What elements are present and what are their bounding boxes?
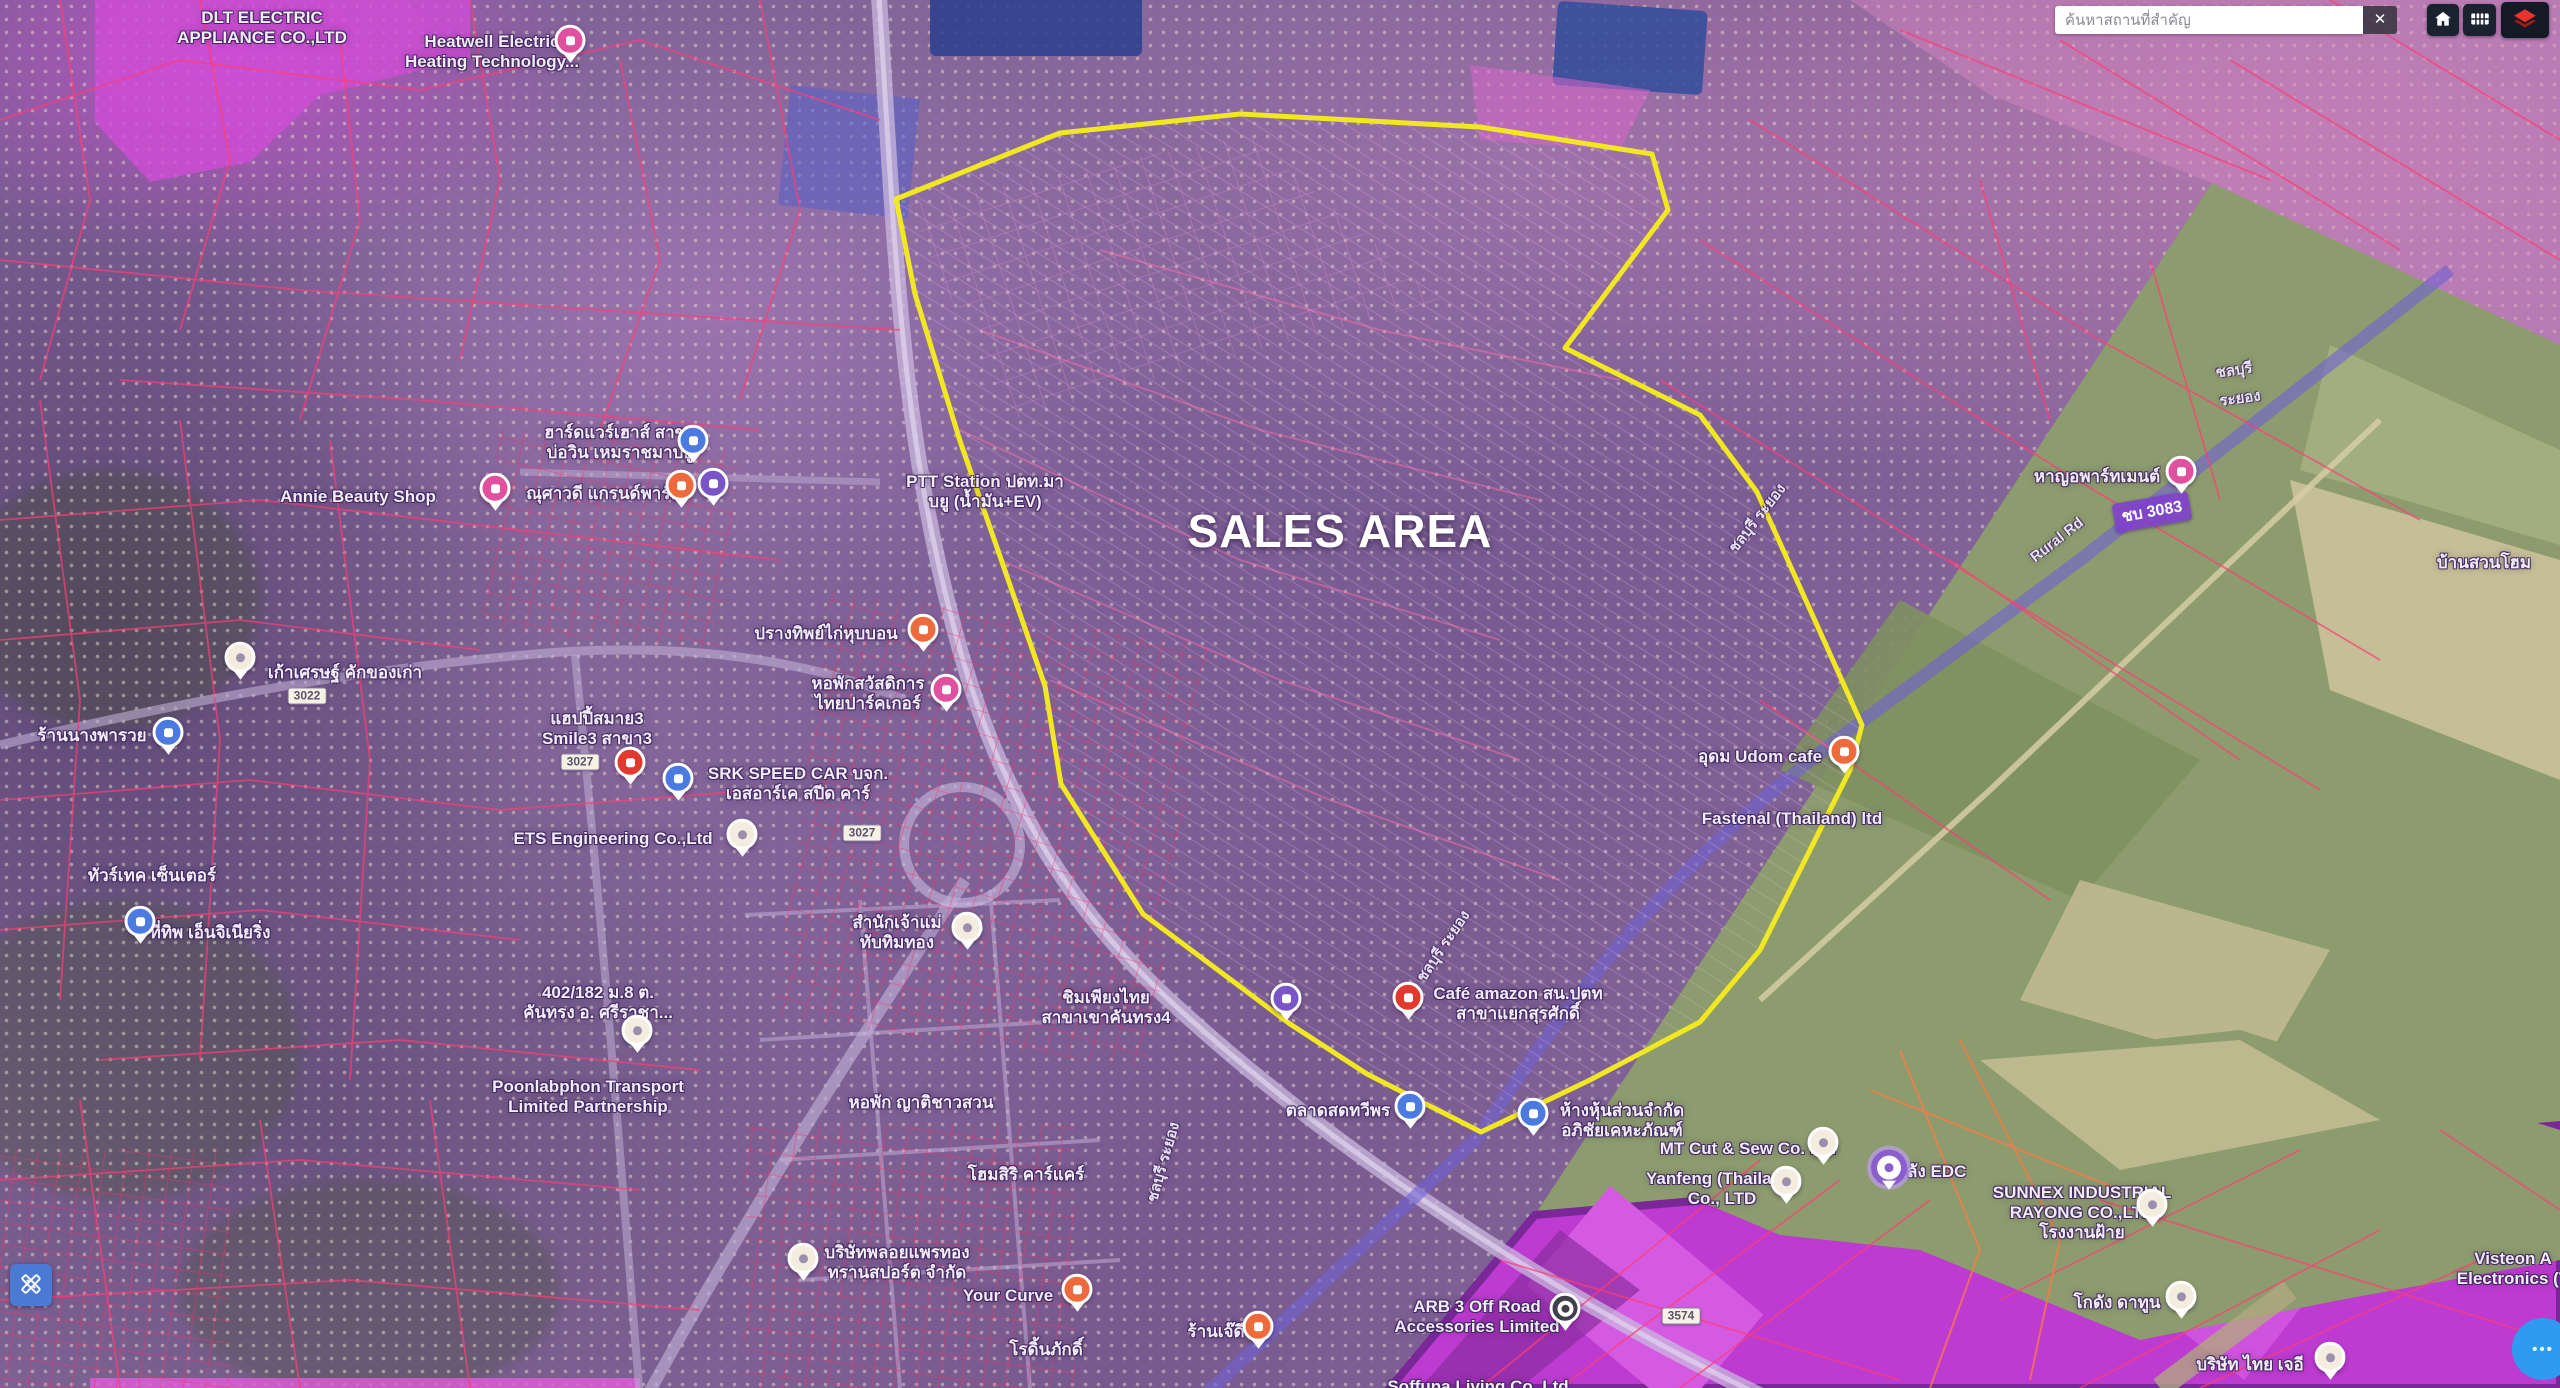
grid-button[interactable] [2463,4,2496,36]
road-west [0,650,905,745]
pencil-ruler-icon [18,1271,44,1300]
clear-search-button[interactable]: ✕ [2363,6,2397,34]
parcel-grid [745,1125,1075,1388]
layers-button[interactable] [2501,2,2549,38]
search-bar: ✕ [2055,6,2397,34]
grid-table-icon [2469,8,2491,33]
map-canvas[interactable]: SALES AREA DLT ELECTRICAPPLIANCE CO.,LTD… [0,0,2560,1388]
draw-tool-button[interactable] [10,1264,52,1306]
layers-icon [2512,6,2538,35]
search-input[interactable] [2055,6,2363,34]
home-button[interactable] [2427,4,2459,36]
parcel-grid [482,430,739,650]
zone-magenta-topleft [95,0,470,182]
home-icon [2433,9,2453,32]
map-art-layer [0,0,2560,1388]
pond [930,0,1142,56]
road-south [575,655,640,1388]
